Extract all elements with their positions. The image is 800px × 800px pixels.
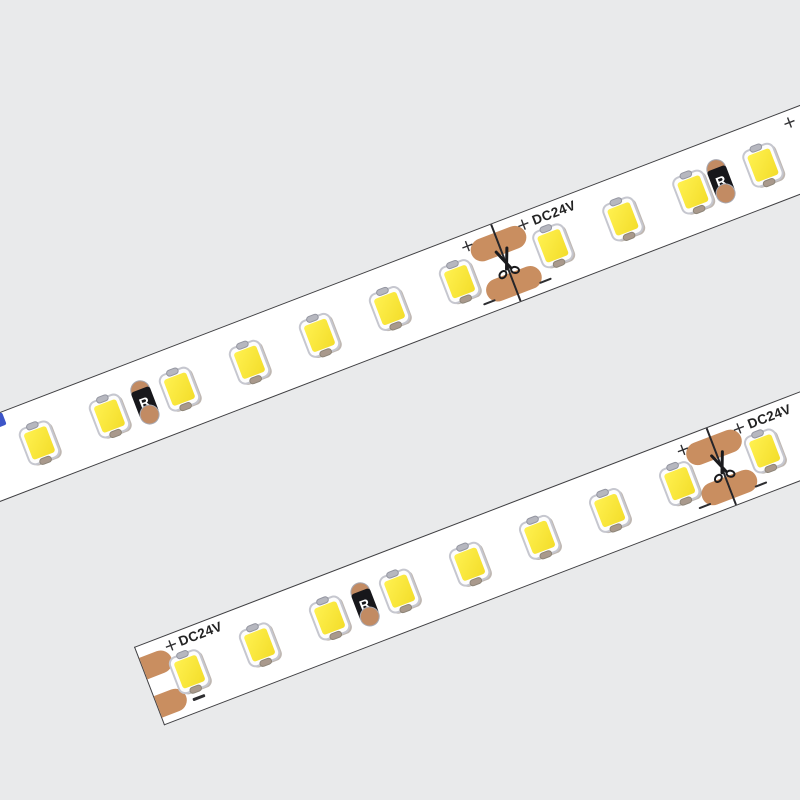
led-phosphor — [537, 228, 569, 263]
resistor: R — [346, 579, 383, 630]
led-phosphor — [748, 434, 780, 469]
led-chip — [530, 221, 576, 271]
led-chip — [296, 311, 342, 361]
minus-mark — [698, 503, 711, 510]
led-chip — [377, 566, 423, 616]
scissors-part — [725, 469, 736, 478]
product-image-led-strips: ++DC24VRR+++DC24V+DC24VR — [0, 0, 800, 800]
scissors-part — [509, 265, 520, 274]
led-chip — [86, 391, 132, 441]
led-phosphor — [233, 345, 265, 380]
led-phosphor — [747, 148, 779, 183]
led-phosphor — [313, 601, 345, 636]
led-phosphor — [663, 466, 695, 501]
scissors-part — [494, 250, 513, 270]
plus-mark: + — [673, 440, 694, 461]
led-chip — [156, 364, 202, 414]
led-phosphor — [443, 264, 475, 299]
scissors-part — [709, 454, 728, 474]
led-phosphor — [383, 574, 415, 609]
led-chip — [226, 337, 272, 387]
led-chip — [587, 486, 633, 536]
led-chip — [366, 284, 412, 334]
led-chip — [740, 140, 786, 190]
led-phosphor — [93, 399, 125, 434]
led-phosphor — [453, 547, 485, 582]
led-chip — [517, 513, 563, 563]
led-phosphor — [373, 291, 405, 326]
voltage-label: DC24V — [177, 619, 225, 650]
led-phosphor — [523, 520, 555, 555]
led-chip — [307, 593, 353, 643]
plus-mark: + — [779, 112, 800, 133]
led-phosphor — [677, 175, 709, 210]
plus-mark: + — [457, 236, 478, 257]
resistor: R — [126, 377, 163, 428]
led-phosphor — [243, 627, 275, 662]
led-chip — [600, 194, 646, 244]
minus-mark — [482, 299, 495, 306]
led-chip — [657, 459, 703, 509]
led-chip — [237, 620, 283, 670]
led-chip — [437, 257, 483, 307]
led-phosphor — [163, 372, 195, 407]
blue-fragment — [0, 412, 7, 429]
led-phosphor — [607, 202, 639, 237]
led-strip-lower: ++DC24V+DC24VR — [134, 375, 800, 726]
led-phosphor — [173, 654, 205, 689]
minus-mark — [192, 694, 205, 701]
led-phosphor — [303, 318, 335, 353]
led-chip — [447, 539, 493, 589]
led-phosphor — [593, 493, 625, 528]
led-phosphor — [23, 426, 55, 461]
led-chip — [16, 418, 62, 468]
